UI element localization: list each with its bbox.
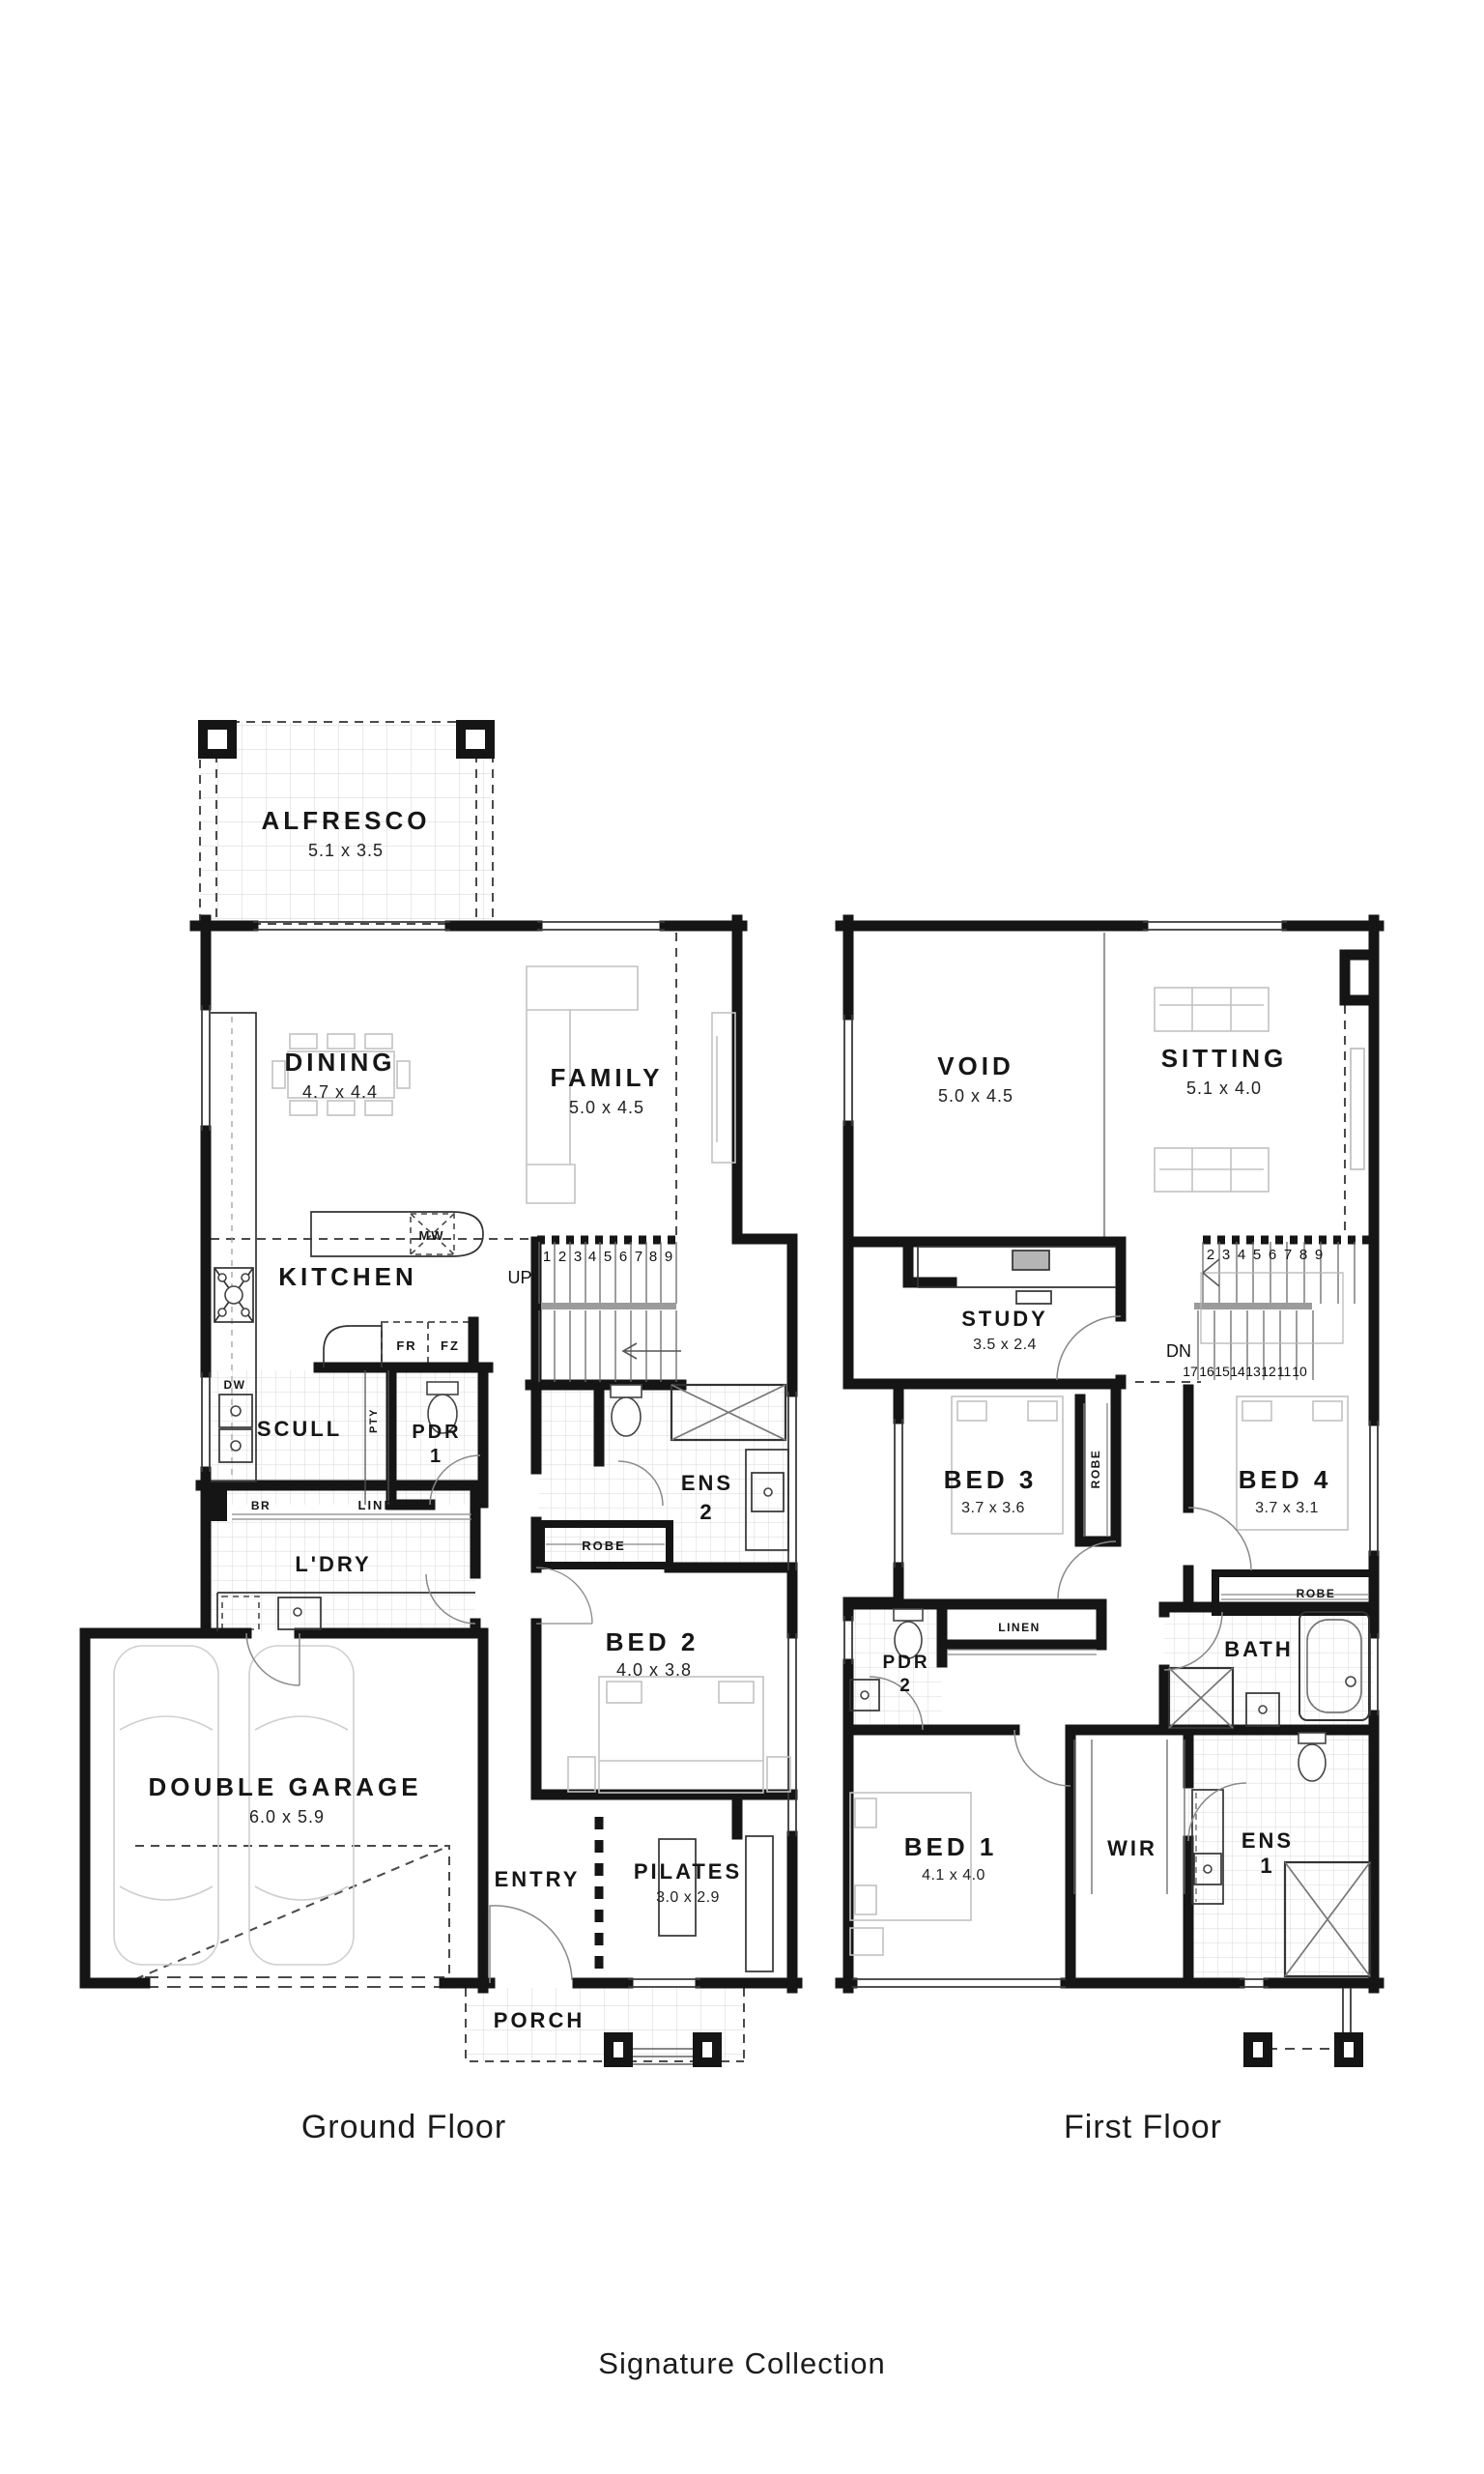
stair-num: 8 xyxy=(649,1249,657,1265)
stair-num: 3 xyxy=(1222,1247,1230,1263)
tv-unit xyxy=(712,1013,735,1163)
bed2-bed xyxy=(599,1677,763,1793)
stair-num: 11 xyxy=(1277,1364,1292,1379)
stair-num: 4 xyxy=(1238,1247,1245,1263)
room-label-porch: PORCH xyxy=(494,2008,585,2032)
room-dims-study: 3.5 x 2.4 xyxy=(973,1337,1037,1353)
room-dims-bed1: 4.1 x 4.0 xyxy=(922,1867,985,1884)
room-label-wir: WIR xyxy=(1107,1836,1157,1860)
stair-num: 9 xyxy=(1315,1247,1323,1263)
room-label-bed1: BED 1 xyxy=(904,1832,998,1861)
room-label-kitchen: KITCHEN xyxy=(278,1262,417,1291)
room-label-pdr2: PDR xyxy=(882,1653,929,1673)
ground-floor-caption: Ground Floor xyxy=(201,2109,607,2146)
fixture-label-dw: DW xyxy=(224,1378,246,1392)
room-label-dining: DINING xyxy=(285,1048,396,1077)
stair-num: 6 xyxy=(1269,1247,1276,1263)
room-label-scull: SCULL xyxy=(257,1417,342,1441)
room-dims-family: 5.0 x 4.5 xyxy=(569,1098,644,1117)
fixture-label-pty: PTY xyxy=(368,1408,380,1433)
stair-num: 5 xyxy=(1253,1247,1261,1263)
car-1 xyxy=(114,1646,218,1965)
floorplan-drawing: VOID 5.0 x 4.5 SITTING 5.1 x 4.0 STUDY 3… xyxy=(0,0,1484,2474)
fixture-label-linen-first: LINEN xyxy=(998,1621,1041,1634)
room-number-pdr2: 2 xyxy=(899,1676,913,1696)
room-dims-bed2: 4.0 x 3.8 xyxy=(616,1660,692,1680)
room-label-bed3: BED 3 xyxy=(944,1465,1038,1494)
room-dims-garage: 6.0 x 5.9 xyxy=(249,1807,325,1827)
room-label-sitting: SITTING xyxy=(1161,1044,1288,1073)
room-number-pdr1: 1 xyxy=(430,1446,443,1467)
stair-num: 9 xyxy=(665,1249,672,1265)
room-number-ens1: 1 xyxy=(1260,1854,1274,1878)
window-seat xyxy=(1351,1049,1364,1169)
stair-direction-dn: DN xyxy=(1166,1341,1191,1361)
stair-num: 1 xyxy=(543,1249,551,1265)
room-label-pilates: PILATES xyxy=(634,1859,742,1884)
room-label-pdr1: PDR xyxy=(412,1422,461,1443)
stair-num: 3 xyxy=(574,1249,582,1265)
fixture-label-robe-bed3: ROBE xyxy=(1089,1450,1102,1489)
room-label-entry: ENTRY xyxy=(495,1867,581,1891)
room-label-bed2: BED 2 xyxy=(606,1627,699,1656)
room-dims-void: 5.0 x 4.5 xyxy=(938,1086,1013,1106)
room-dims-dining: 4.7 x 4.4 xyxy=(302,1082,378,1102)
fixture-label-fr: FR xyxy=(396,1338,416,1353)
stair-num: 6 xyxy=(619,1249,627,1265)
stair-num: 13 xyxy=(1245,1364,1261,1379)
stair-num: 2 xyxy=(1207,1247,1214,1263)
stair-num: 2 xyxy=(558,1249,566,1265)
first-floor-plan: VOID 5.0 x 4.5 SITTING 5.1 x 4.0 STUDY 3… xyxy=(841,920,1379,2062)
first-floor-caption: First Floor xyxy=(940,2109,1346,2146)
room-label-ldry: L'DRY xyxy=(295,1552,371,1576)
stair-num: 14 xyxy=(1230,1364,1245,1379)
room-label-family: FAMILY xyxy=(551,1063,664,1092)
stair-direction-up: UP xyxy=(507,1268,531,1287)
fixture-label-mw: MW xyxy=(418,1228,444,1243)
floorplan-page: VOID 5.0 x 4.5 SITTING 5.1 x 4.0 STUDY 3… xyxy=(0,0,1484,2474)
ground-stair-numbers: 1 2 3 4 5 6 7 8 9 xyxy=(543,1249,672,1265)
collection-title: Signature Collection xyxy=(0,2346,1484,2381)
room-dims-pilates: 3.0 x 2.9 xyxy=(656,1889,720,1906)
room-dims-alfresco: 5.1 x 3.5 xyxy=(308,841,384,860)
stair-num: 16 xyxy=(1199,1364,1214,1379)
fixture-label-br: BR xyxy=(251,1499,271,1512)
stair-num: 10 xyxy=(1292,1364,1307,1379)
stair-num: 12 xyxy=(1261,1364,1276,1379)
room-label-ens1: ENS xyxy=(1241,1828,1294,1853)
fixture-label-robe-bed4: ROBE xyxy=(1297,1587,1336,1600)
first-stair-numbers-lower: 17 16 15 14 13 12 11 10 xyxy=(1183,1364,1307,1379)
room-number-ens2: 2 xyxy=(699,1500,714,1524)
room-dims-bed4: 3.7 x 3.1 xyxy=(1255,1500,1319,1516)
stair-num: 17 xyxy=(1183,1364,1198,1379)
ground-duct xyxy=(201,1488,227,1521)
fixture-label-robe-ground: ROBE xyxy=(582,1539,626,1553)
stair-num: 7 xyxy=(635,1249,642,1265)
stair-num: 8 xyxy=(1299,1247,1307,1263)
stair-num: 4 xyxy=(588,1249,596,1265)
room-label-bath: BATH xyxy=(1224,1637,1293,1661)
fixture-label-fz: FZ xyxy=(441,1338,460,1353)
room-label-bed4: BED 4 xyxy=(1239,1465,1332,1494)
stair-num: 5 xyxy=(604,1249,612,1265)
fixture-label-linen-ground: LINEN xyxy=(358,1498,406,1512)
sitting-sofa-1 xyxy=(1155,988,1269,1031)
room-label-garage: DOUBLE GARAGE xyxy=(148,1772,421,1801)
car-2 xyxy=(249,1646,354,1965)
room-dims-sitting: 5.1 x 4.0 xyxy=(1186,1079,1262,1098)
room-label-study: STUDY xyxy=(961,1307,1048,1331)
room-dims-bed3: 3.7 x 3.6 xyxy=(961,1500,1025,1516)
stair-num: 15 xyxy=(1214,1364,1230,1379)
room-label-alfresco: ALFRESCO xyxy=(262,806,431,835)
stair-num: 7 xyxy=(1284,1247,1292,1263)
first-stair-numbers-upper: 2 3 4 5 6 7 8 9 xyxy=(1207,1247,1323,1263)
room-label-void: VOID xyxy=(937,1051,1014,1080)
room-label-ens2: ENS xyxy=(681,1471,733,1495)
